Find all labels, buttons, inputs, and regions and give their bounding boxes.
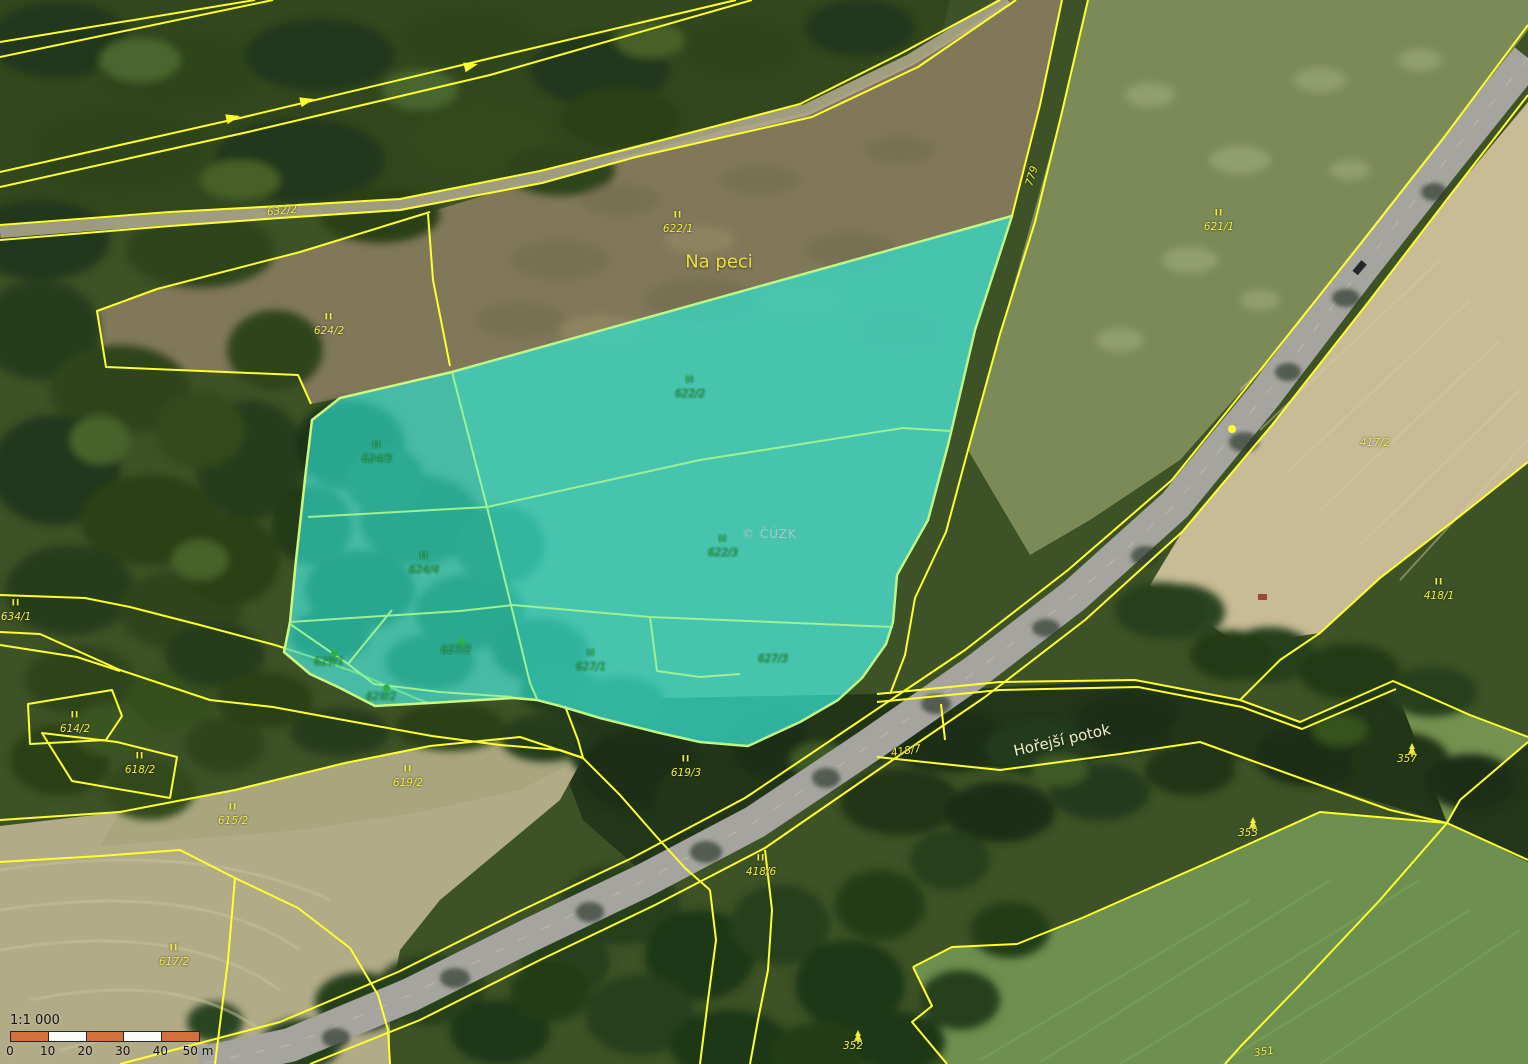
scale-tick-label: 40 — [153, 1044, 168, 1058]
scale-bar-ticks: 01020304050 m — [8, 1044, 228, 1060]
scale-tick-label: 30 — [115, 1044, 130, 1058]
scale-ratio: 1:1 000 — [10, 1013, 228, 1028]
cuzk-watermark: © ČÚZK — [742, 527, 797, 541]
scale-segment — [162, 1032, 199, 1041]
scale-tick-label: 10 — [40, 1044, 55, 1058]
boundary-point — [1228, 425, 1236, 433]
scale-segment — [87, 1032, 125, 1041]
scale-tick-label: 50 m — [183, 1044, 214, 1058]
scale-segment — [49, 1032, 87, 1041]
scale-bar: 1:1 000 01020304050 m — [8, 1013, 228, 1060]
cadastral-map-viewport[interactable]: 632/2II622/1II624/2779II621/1417/2II418/… — [0, 0, 1528, 1064]
scale-tick-label: 20 — [78, 1044, 93, 1058]
scale-tick-label: 0 — [6, 1044, 14, 1058]
red-machine — [1258, 594, 1267, 600]
scale-bar-segments — [10, 1031, 200, 1042]
scale-segment — [11, 1032, 49, 1041]
scale-segment — [124, 1032, 162, 1041]
